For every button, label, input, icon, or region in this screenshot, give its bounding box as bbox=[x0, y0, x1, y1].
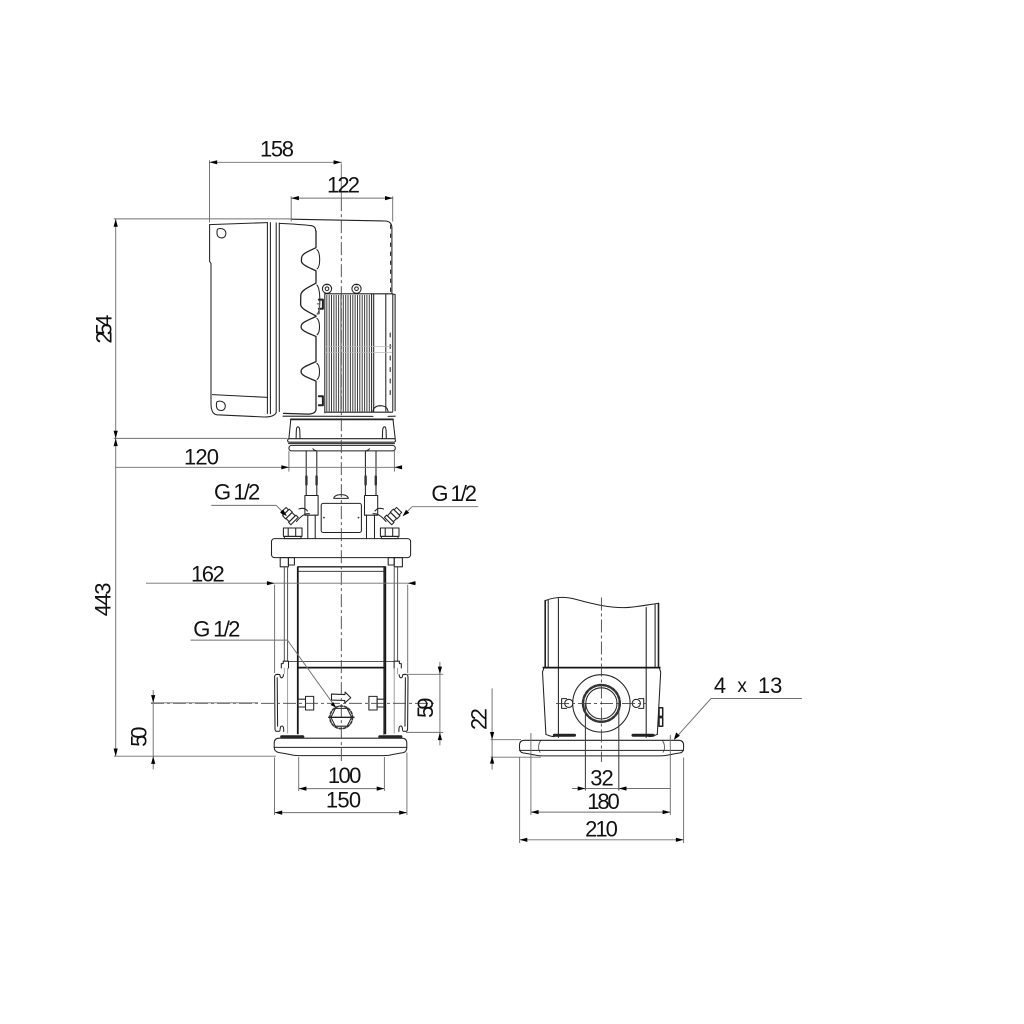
svg-text:G 1/2: G 1/2 bbox=[214, 480, 260, 505]
svg-text:59: 59 bbox=[413, 698, 438, 719]
svg-text:G 1/2: G 1/2 bbox=[193, 616, 240, 641]
svg-text:162: 162 bbox=[191, 561, 225, 586]
svg-text:158: 158 bbox=[260, 136, 294, 161]
svg-text:50: 50 bbox=[126, 727, 151, 747]
svg-text:22: 22 bbox=[467, 708, 492, 730]
svg-text:150: 150 bbox=[326, 788, 361, 813]
svg-text:180: 180 bbox=[587, 789, 620, 814]
svg-text:100: 100 bbox=[328, 763, 362, 788]
svg-text:210: 210 bbox=[585, 817, 618, 842]
svg-text:122: 122 bbox=[327, 172, 360, 197]
svg-text:x: x bbox=[737, 676, 747, 697]
svg-text:443: 443 bbox=[90, 583, 115, 617]
svg-text:G 1/2: G 1/2 bbox=[431, 481, 477, 506]
svg-text:254: 254 bbox=[91, 315, 116, 344]
svg-text:120: 120 bbox=[184, 444, 219, 469]
svg-text:4: 4 bbox=[714, 673, 726, 698]
svg-text:13: 13 bbox=[758, 673, 782, 698]
svg-text:32: 32 bbox=[590, 765, 614, 790]
